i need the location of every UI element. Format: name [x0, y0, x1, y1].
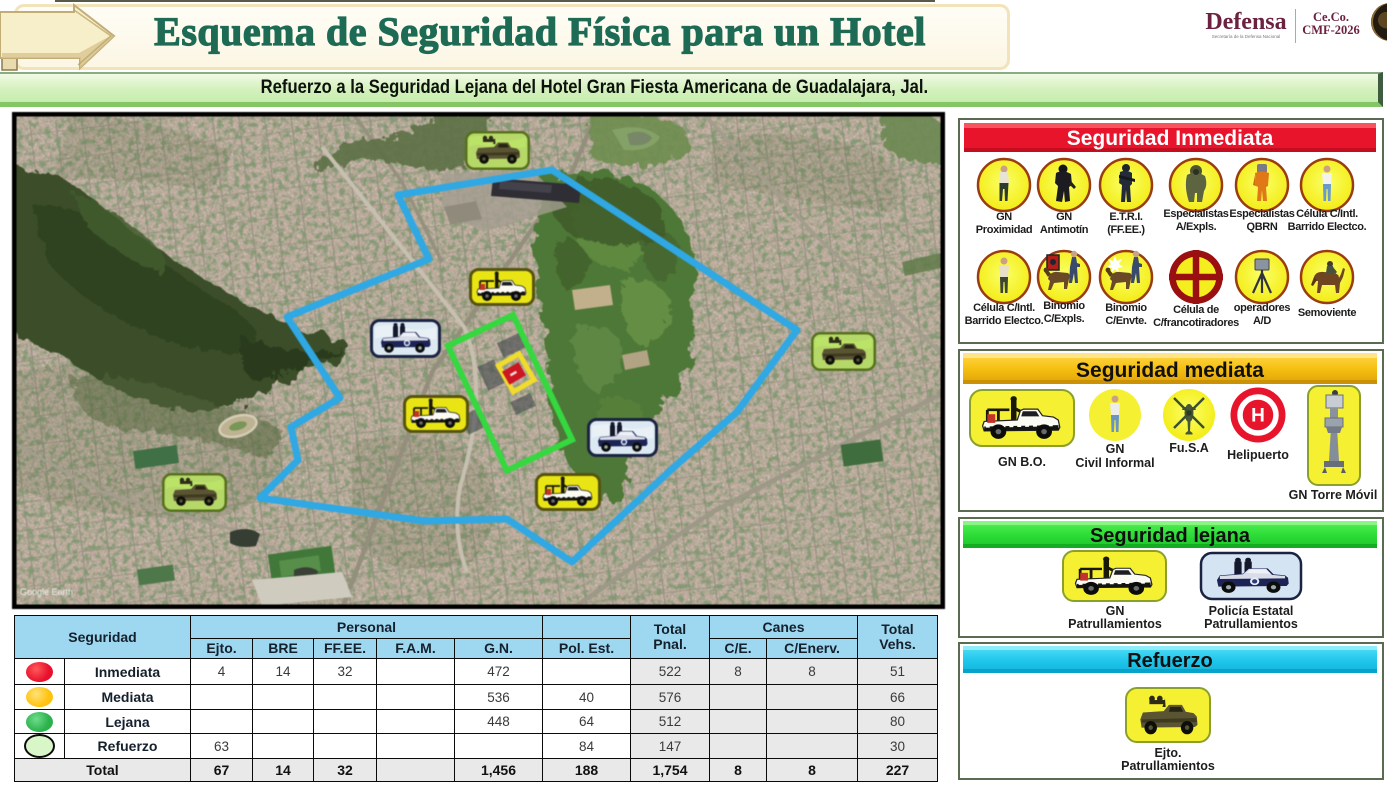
- svg-text:Fu.S.A: Fu.S.A: [1169, 441, 1209, 455]
- svg-text:EspecialistasA/Expls.: EspecialistasA/Expls.: [1163, 208, 1228, 233]
- svg-text:operadoresA/D: operadoresA/D: [1234, 302, 1291, 327]
- svg-text:Refuerzo: Refuerzo: [1127, 650, 1213, 672]
- svg-text:Seguridad mediata: Seguridad mediata: [1076, 359, 1264, 382]
- svg-text:Helipuerto: Helipuerto: [1227, 448, 1289, 462]
- svg-text:GN B.O.: GN B.O.: [998, 455, 1046, 469]
- svg-text:Google Earth: Google Earth: [20, 587, 73, 597]
- svg-text:EspecialistasQBRN: EspecialistasQBRN: [1229, 208, 1294, 233]
- svg-text:GNPatrullamientos: GNPatrullamientos: [1068, 604, 1162, 631]
- svg-text:GNAntimotín: GNAntimotín: [1040, 211, 1089, 236]
- svg-text:GNCivil Informal: GNCivil Informal: [1075, 442, 1154, 470]
- svg-text:E.T.R.I.(FF.EE.): E.T.R.I.(FF.EE.): [1107, 211, 1145, 236]
- svg-text:Célula C/Intl.Barrido Electco.: Célula C/Intl.Barrido Electco.: [965, 302, 1044, 327]
- svg-text:Ejto.Patrullamientos: Ejto.Patrullamientos: [1121, 746, 1215, 773]
- svg-text:BinomioC/Envte.: BinomioC/Envte.: [1105, 302, 1147, 327]
- svg-text:GN Torre Móvil: GN Torre Móvil: [1289, 488, 1378, 502]
- svg-text:Seguridad lejana: Seguridad lejana: [1090, 525, 1251, 547]
- svg-text:BinomioC/Expls.: BinomioC/Expls.: [1043, 300, 1085, 325]
- svg-text:Semoviente: Semoviente: [1298, 307, 1356, 319]
- svg-text:GNProximidad: GNProximidad: [976, 211, 1032, 236]
- svg-text:Policía EstatalPatrullamientos: Policía EstatalPatrullamientos: [1204, 604, 1298, 631]
- svg-text:Célula C/Intl.Barrido Electco.: Célula C/Intl.Barrido Electco.: [1288, 208, 1367, 233]
- svg-text:Célula deC/francotiradores: Célula deC/francotiradores: [1153, 304, 1239, 329]
- svg-text:Seguridad Inmediata: Seguridad Inmediata: [1067, 127, 1274, 150]
- svg-text:H: H: [1251, 406, 1265, 427]
